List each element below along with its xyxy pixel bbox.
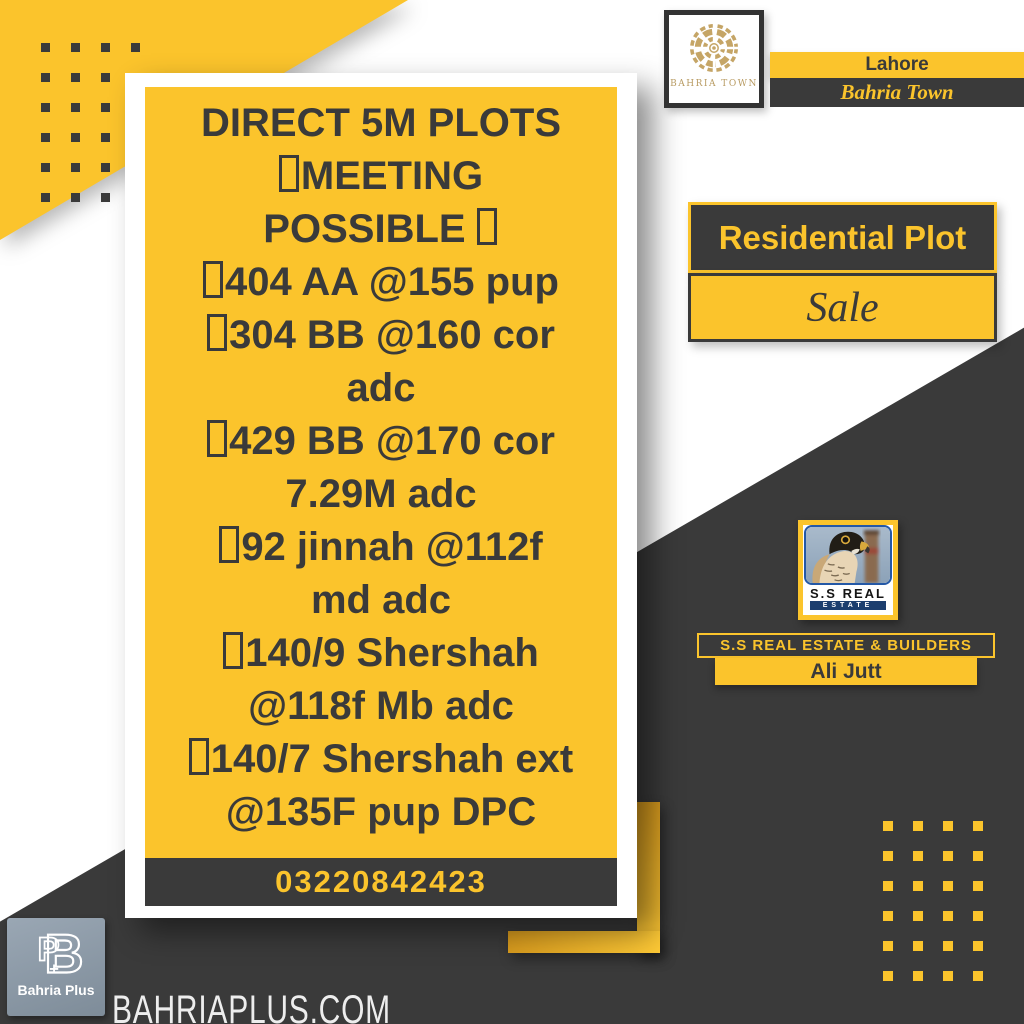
agency-logo-inner: S.S REAL ESTATE [803, 525, 893, 615]
agency-name-label: S.S REAL ESTATE & BUILDERS [720, 637, 972, 654]
listing-status-box: Sale [688, 273, 997, 342]
agent-name-label: Ali Jutt [810, 660, 881, 684]
card-line: 304 BB @160 cor [145, 309, 617, 362]
listing-card: DIRECT 5M PLOTSMEETINGPOSSIBLE 404 AA @1… [125, 73, 637, 918]
bahria-town-logo-caption: BAHRIA TOWN [670, 79, 758, 89]
card-line: @135F pup DPC [145, 786, 617, 839]
card-line: MEETING [145, 150, 617, 203]
bahria-plus-logo: B P + Bahria Plus [7, 918, 105, 1016]
bahria-plus-logo-caption: Bahria Plus [17, 982, 94, 998]
corner-bracket-horizontal [508, 931, 660, 953]
agency-name-bar: S.S REAL ESTATE & BUILDERS [697, 633, 995, 658]
svg-text:+: + [49, 960, 59, 978]
poster: DIRECT 5M PLOTSMEETINGPOSSIBLE 404 AA @1… [0, 0, 1024, 1024]
website-text: BAHRIAPLUS.COM [112, 988, 391, 1024]
listing-type-label: Residential Plot [719, 219, 967, 257]
brand-bar: Bahria Town [770, 78, 1024, 107]
agent-name-bar: Ali Jutt [715, 658, 977, 685]
card-line: @118f Mb adc [145, 680, 617, 733]
bahria-town-emblem-icon [684, 18, 744, 78]
card-line: 140/7 Shershah ext [145, 733, 617, 786]
card-text: DIRECT 5M PLOTSMEETINGPOSSIBLE 404 AA @1… [145, 87, 617, 858]
card-line: DIRECT 5M PLOTS [145, 97, 617, 150]
bahria-plus-monogram-icon: B P + [25, 918, 87, 984]
city-bar: Lahore [770, 52, 1024, 78]
listing-type-box: Residential Plot [688, 202, 997, 273]
card-line: adc [145, 362, 617, 415]
dot-grid-bottom-right [883, 821, 1003, 1001]
falcon-photo [804, 525, 892, 585]
card-line: 92 jinnah @112f [145, 521, 617, 574]
city-label: Lahore [865, 54, 928, 76]
brand-label: Bahria Town [840, 80, 953, 105]
card-line: 140/9 Shershah [145, 627, 617, 680]
card-line: md adc [145, 574, 617, 627]
agency-logo: S.S REAL ESTATE [798, 520, 898, 620]
phone-number: 03220842423 [275, 864, 487, 900]
card-line: 429 BB @170 cor [145, 415, 617, 468]
listing-status-label: Sale [806, 284, 878, 332]
card-line: POSSIBLE [145, 203, 617, 256]
agency-logo-line2: ESTATE [810, 601, 886, 610]
bahria-town-logo: BAHRIA TOWN [664, 10, 764, 108]
phone-bar: 03220842423 [145, 858, 617, 906]
card-line: 404 AA @155 pup [145, 256, 617, 309]
agency-logo-line1: S.S REAL [810, 586, 886, 601]
card-line: 7.29M adc [145, 468, 617, 521]
